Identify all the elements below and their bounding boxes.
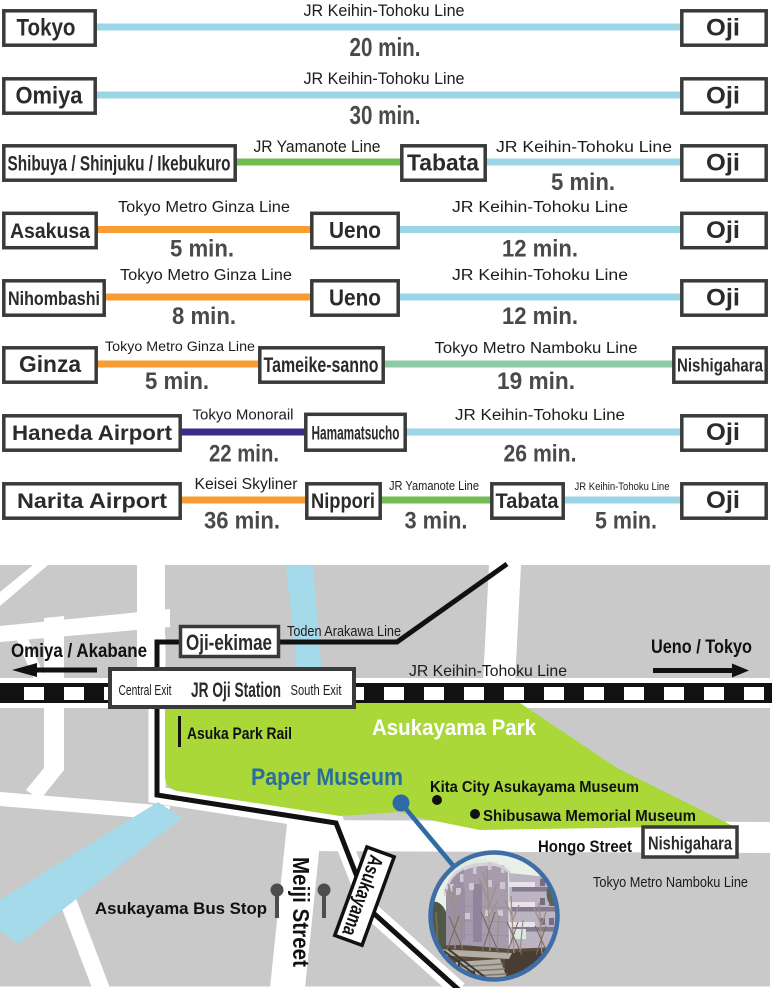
svg-text:Ginza: Ginza [19, 351, 81, 377]
svg-text:36 min.: 36 min. [204, 508, 280, 535]
svg-text:Kita City Asukayama Museum: Kita City Asukayama Museum [430, 779, 639, 796]
svg-text:Tokyo Metro Ginza Line: Tokyo Metro Ginza Line [105, 339, 255, 354]
svg-text:Oji: Oji [706, 487, 740, 514]
svg-text:JR Keihin-Tohoku Line: JR Keihin-Tohoku Line [455, 407, 625, 424]
svg-text:JR Keihin-Tohoku Line: JR Keihin-Tohoku Line [304, 1, 465, 20]
svg-text:Asuka Park Rail: Asuka Park Rail [187, 724, 292, 743]
svg-text:Tokyo Monorail: Tokyo Monorail [193, 407, 294, 424]
svg-text:Oji: Oji [706, 15, 740, 42]
svg-text:Ueno: Ueno [329, 285, 381, 311]
svg-text:19 min.: 19 min. [497, 368, 575, 395]
svg-text:Nishigahara: Nishigahara [648, 834, 733, 854]
svg-text:Central Exit: Central Exit [119, 682, 173, 699]
svg-text:26 min.: 26 min. [504, 441, 577, 468]
svg-text:Tabata: Tabata [407, 150, 479, 176]
svg-text:Nihombashi: Nihombashi [8, 288, 100, 310]
svg-text:Oji: Oji [706, 83, 740, 110]
svg-text:JR Keihin-Tohoku Line: JR Keihin-Tohoku Line [496, 139, 672, 156]
svg-text:Hongo Street: Hongo Street [538, 837, 632, 856]
svg-text:Asukayama Park: Asukayama Park [372, 715, 537, 740]
svg-text:Nishigahara: Nishigahara [677, 355, 764, 376]
svg-text:5 min.: 5 min. [145, 368, 209, 395]
svg-text:Oji: Oji [706, 217, 740, 244]
svg-text:JR Keihin-Tohoku Line: JR Keihin-Tohoku Line [452, 199, 628, 216]
svg-text:Oji: Oji [706, 285, 740, 312]
svg-text:JR Keihin-Tohoku Line: JR Keihin-Tohoku Line [409, 663, 567, 680]
svg-text:Asukayama Bus Stop: Asukayama Bus Stop [95, 899, 267, 918]
svg-text:JR Oji Station: JR Oji Station [191, 678, 281, 702]
svg-text:5 min.: 5 min. [551, 169, 615, 196]
svg-text:Toden Arakawa Line: Toden Arakawa Line [287, 623, 401, 640]
svg-text:Shibuya / Shinjuku / Ikebukuro: Shibuya / Shinjuku / Ikebukuro [8, 153, 231, 176]
svg-text:Tabata: Tabata [496, 489, 560, 513]
svg-text:Oji: Oji [706, 150, 740, 177]
svg-text:3 min.: 3 min. [405, 508, 468, 535]
svg-text:20 min.: 20 min. [350, 32, 421, 62]
svg-text:Keisei Skyliner: Keisei Skyliner [195, 476, 298, 493]
svg-text:5 min.: 5 min. [595, 508, 657, 535]
svg-text:Tameike-sanno: Tameike-sanno [264, 354, 379, 377]
svg-text:Haneda Airport: Haneda Airport [12, 422, 172, 445]
svg-text:Tokyo Metro Namboku Line: Tokyo Metro Namboku Line [593, 875, 748, 891]
svg-text:JR Yamanote Line: JR Yamanote Line [254, 137, 381, 156]
svg-text:8 min.: 8 min. [172, 303, 236, 330]
svg-text:Oji-ekimae: Oji-ekimae [186, 630, 272, 655]
svg-text:12 min.: 12 min. [502, 303, 578, 330]
svg-text:Tokyo Metro Ginza Line: Tokyo Metro Ginza Line [118, 199, 290, 216]
svg-text:Oji: Oji [706, 419, 740, 446]
svg-text:JR Keihin-Tohoku Line: JR Keihin-Tohoku Line [575, 481, 670, 493]
svg-text:Paper Museum: Paper Museum [251, 764, 403, 791]
svg-text:Tokyo Metro Ginza Line: Tokyo Metro Ginza Line [120, 267, 292, 284]
svg-text:Tokyo Metro Namboku Line: Tokyo Metro Namboku Line [435, 340, 638, 357]
svg-text:Omiya / Akabane: Omiya / Akabane [11, 641, 147, 662]
svg-text:Shibusawa Memorial Museum: Shibusawa Memorial Museum [483, 808, 696, 825]
svg-text:Narita Airport: Narita Airport [17, 490, 167, 513]
svg-text:Omiya: Omiya [16, 83, 84, 110]
svg-text:30 min.: 30 min. [350, 100, 421, 130]
svg-text:Ueno: Ueno [329, 217, 381, 243]
svg-text:5 min.: 5 min. [170, 236, 234, 263]
svg-text:Meiji Street: Meiji Street [288, 857, 314, 967]
svg-text:South Exit: South Exit [291, 682, 343, 699]
svg-text:22 min.: 22 min. [209, 441, 279, 468]
svg-text:JR Keihin-Tohoku Line: JR Keihin-Tohoku Line [304, 69, 465, 88]
svg-text:Hamamatsucho: Hamamatsucho [312, 424, 400, 445]
svg-text:12 min.: 12 min. [502, 236, 578, 263]
svg-text:Asakusa: Asakusa [10, 220, 90, 243]
svg-text:JR Keihin-Tohoku Line: JR Keihin-Tohoku Line [452, 267, 628, 284]
svg-text:Ueno / Tokyo: Ueno / Tokyo [651, 637, 752, 658]
svg-text:JR Yamanote Line: JR Yamanote Line [389, 478, 479, 493]
svg-text:Tokyo: Tokyo [17, 15, 76, 42]
svg-text:Nippori: Nippori [311, 489, 375, 513]
